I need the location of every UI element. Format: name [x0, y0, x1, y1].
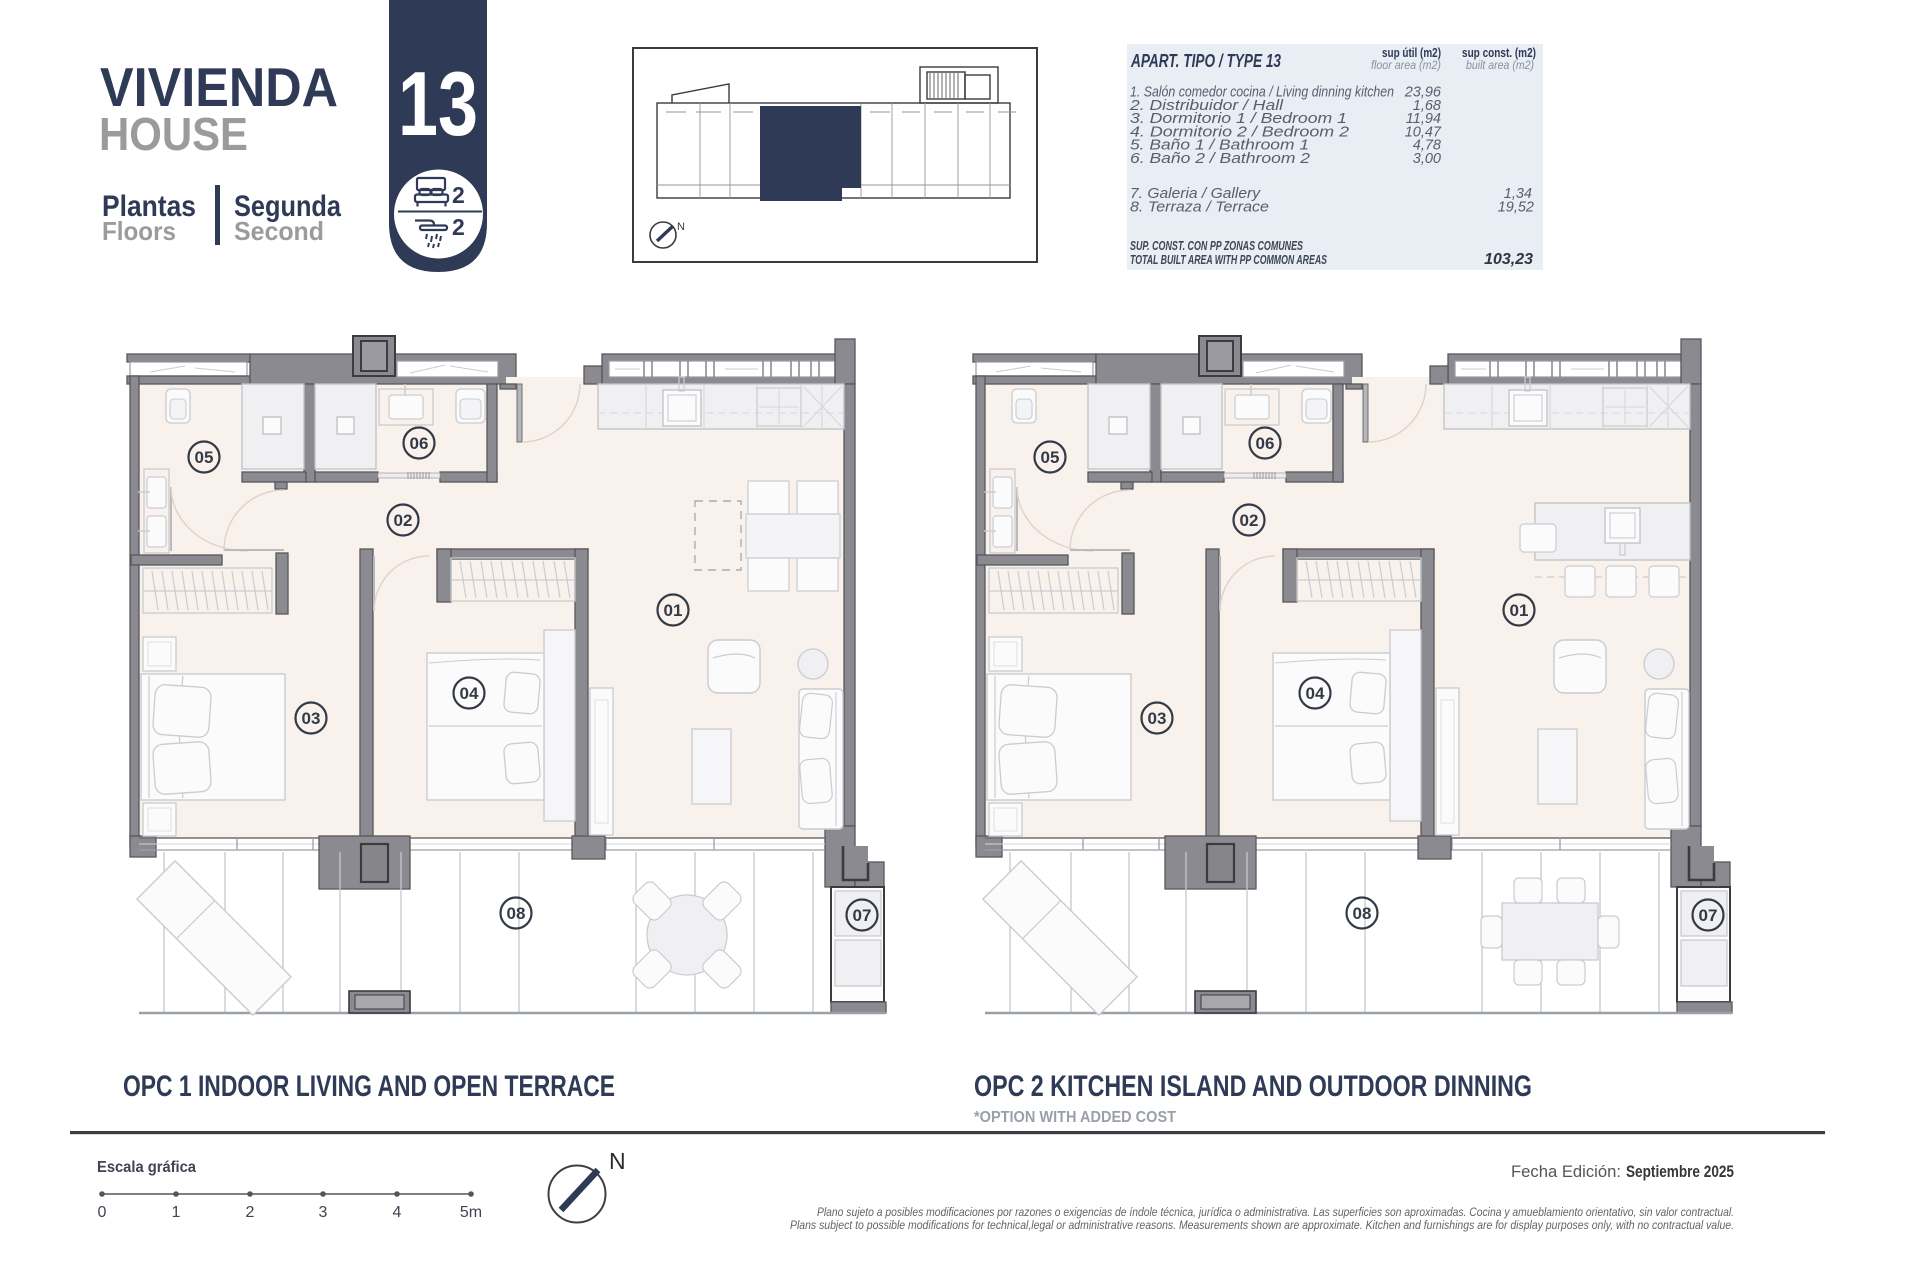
svg-text:3,00: 3,00 [1413, 151, 1441, 167]
svg-text:03: 03 [1148, 709, 1167, 728]
svg-text:2: 2 [452, 214, 465, 240]
svg-text:04: 04 [1306, 684, 1325, 703]
svg-text:Floors: Floors [102, 216, 176, 246]
svg-text:6. Baño 2 / Bathroom 2: 6. Baño 2 / Bathroom 2 [1130, 151, 1310, 167]
svg-text:HOUSE: HOUSE [99, 108, 248, 160]
svg-text:APART. TIPO / TYPE 13: APART. TIPO / TYPE 13 [1130, 51, 1281, 71]
svg-text:01: 01 [1510, 601, 1529, 620]
svg-text:1: 1 [172, 1204, 181, 1221]
svg-text:05: 05 [1041, 448, 1060, 467]
svg-text:06: 06 [1256, 434, 1275, 453]
svg-text:2: 2 [246, 1204, 255, 1221]
svg-text:06: 06 [410, 434, 429, 453]
svg-text:2: 2 [452, 182, 465, 208]
svg-text:built area (m2): built area (m2) [1466, 58, 1534, 72]
svg-text:04: 04 [460, 684, 479, 703]
svg-text:07: 07 [853, 906, 872, 925]
svg-text:floor area (m2): floor area (m2) [1371, 58, 1441, 72]
svg-text:N: N [677, 221, 685, 233]
svg-text:4: 4 [393, 1204, 402, 1221]
svg-text:Plano sujeto a posibles modifi: Plano sujeto a posibles modificaciones p… [817, 1205, 1734, 1219]
svg-text:5m: 5m [460, 1204, 482, 1221]
svg-text:Second: Second [234, 216, 324, 246]
svg-text:*OPTION WITH ADDED COST: *OPTION WITH ADDED COST [974, 1109, 1176, 1126]
svg-text:Fecha Edición:: Fecha Edición: [1511, 1162, 1621, 1181]
svg-text:08: 08 [507, 904, 526, 923]
svg-text:03: 03 [302, 709, 321, 728]
svg-text:07: 07 [1699, 906, 1718, 925]
svg-text:08: 08 [1353, 904, 1372, 923]
svg-text:01: 01 [664, 601, 683, 620]
svg-text:0: 0 [98, 1204, 107, 1221]
svg-text:103,23: 103,23 [1484, 251, 1533, 268]
svg-text:02: 02 [394, 511, 413, 530]
svg-text:OPC 1 INDOOR LIVING AND OPEN T: OPC 1 INDOOR LIVING AND OPEN TERRACE [123, 1070, 615, 1103]
svg-text:Escala gráfica: Escala gráfica [97, 1159, 196, 1176]
svg-text:19,52: 19,52 [1498, 200, 1534, 216]
svg-text:OPC 2 KITCHEN ISLAND AND OUTDO: OPC 2 KITCHEN ISLAND AND OUTDOOR DINNING [974, 1070, 1532, 1103]
svg-text:N: N [609, 1148, 626, 1174]
svg-text:05: 05 [195, 448, 214, 467]
svg-text:TOTAL BUILT AREA WITH PP COMMO: TOTAL BUILT AREA WITH PP COMMON AREAS [1130, 253, 1327, 267]
svg-text:3: 3 [319, 1204, 328, 1221]
svg-text:SUP. CONST. CON PP ZONAS COMUN: SUP. CONST. CON PP ZONAS COMUNES [1130, 239, 1303, 253]
svg-text:02: 02 [1240, 511, 1259, 530]
svg-text:8. Terraza / Terrace: 8. Terraza / Terrace [1130, 200, 1269, 216]
svg-text:Plans subject to possible modi: Plans subject to possible modifications … [790, 1218, 1734, 1232]
svg-text:Septiembre 2025: Septiembre 2025 [1626, 1162, 1734, 1181]
svg-text:13: 13 [398, 54, 478, 155]
